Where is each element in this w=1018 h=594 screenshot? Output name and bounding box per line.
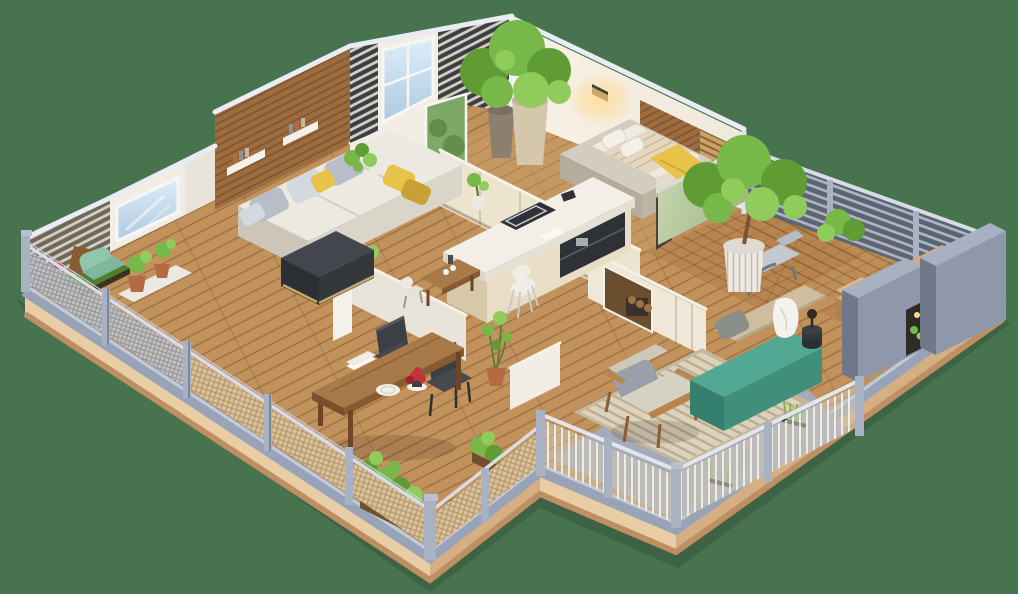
floorplan-illustration: [0, 0, 1018, 594]
sconce-glow: [567, 72, 635, 126]
floorplan-stage: [0, 0, 1018, 594]
table-plate: [376, 384, 400, 396]
